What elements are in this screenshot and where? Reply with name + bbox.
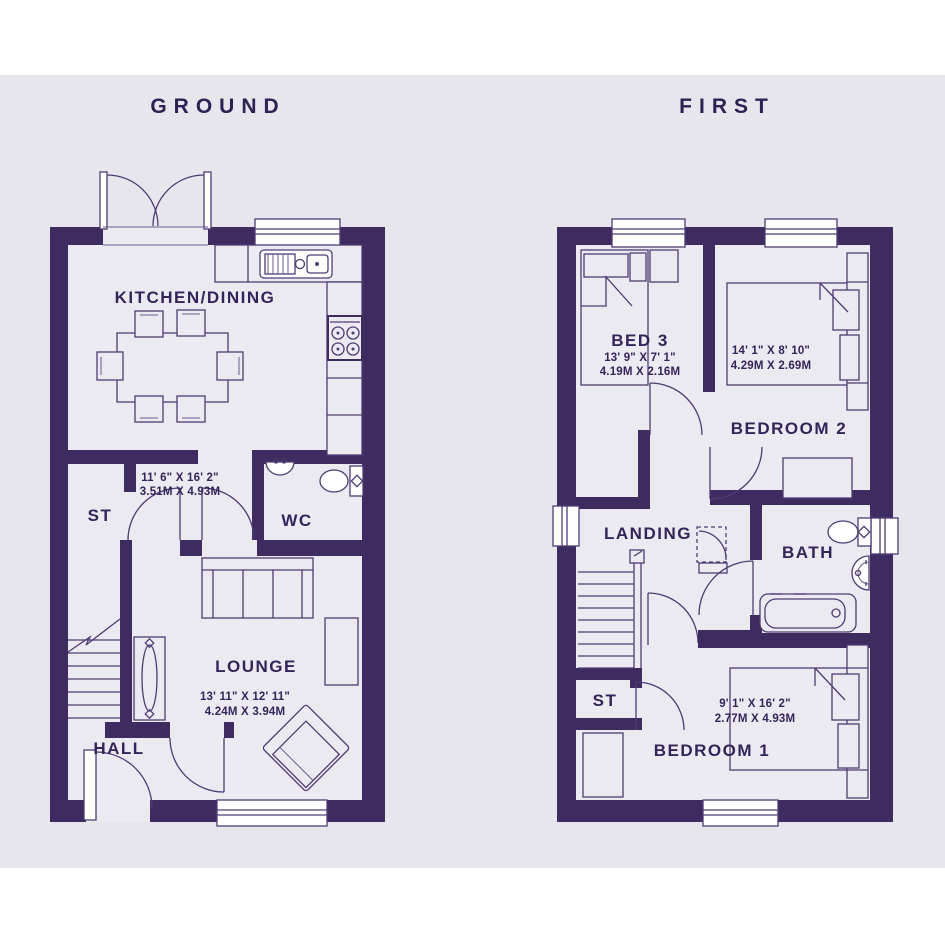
ground-window-bottom (217, 800, 327, 826)
ground-st-label: ST (88, 506, 113, 525)
kitchen-sink (260, 250, 332, 278)
ground-window-top (255, 219, 340, 247)
bedroom2-dims-metric: 4.29M X 2.69M (731, 360, 812, 372)
bedroom1-label: BEDROOM 1 (654, 741, 770, 760)
kitchen-dims-imperial: 11' 6" X 16' 2" (141, 472, 219, 484)
first-st-label: ST (593, 691, 618, 710)
hall-label: HALL (93, 739, 144, 758)
bathtub (760, 594, 856, 632)
kitchen-dims-metric: 3.51M X 4.93M (140, 486, 221, 498)
bedroom1-wardrobe (583, 733, 623, 797)
wc-label: WC (281, 511, 312, 530)
ground-floor-title: GROUND (150, 95, 285, 118)
console-table (134, 637, 165, 720)
lounge-dims-imperial: 13' 11" X 12' 11" (200, 691, 290, 703)
bedroom1-dims-metric: 2.77M X 4.93M (715, 713, 796, 725)
stove (328, 316, 362, 360)
first-window-bottom (703, 800, 778, 826)
floorplan-canvas: GROUND (0, 0, 945, 945)
first-window-top-left (612, 219, 685, 247)
sofa (202, 558, 313, 618)
tv-unit (325, 618, 358, 685)
lounge-label: LOUNGE (215, 657, 297, 676)
bath-label: BATH (782, 543, 834, 562)
bedroom2-dims-imperial: 14' 1" X 8' 10" (732, 345, 810, 357)
bath-window (871, 518, 898, 554)
floorplan-page: GROUND (0, 0, 945, 945)
bed3-dims-imperial: 13' 9" X 7' 1" (604, 352, 676, 364)
bed3-dims-metric: 4.19M X 2.16M (600, 366, 681, 378)
bedroom2-label: BEDROOM 2 (731, 419, 847, 438)
landing-label: LANDING (604, 524, 692, 543)
bedroom1-dims-imperial: 9' 1" X 16' 2" (719, 698, 791, 710)
bed3-label: BED 3 (611, 331, 669, 350)
landing-window (553, 506, 579, 546)
bedroom2-ottoman (783, 458, 852, 498)
first-floor-title: FIRST (679, 95, 775, 118)
lounge-dims-metric: 4.24M X 3.94M (205, 706, 286, 718)
kitchen-dining-label: KITCHEN/DINING (115, 288, 276, 307)
patio-door-opening (103, 227, 208, 245)
first-window-top-right (765, 219, 837, 247)
